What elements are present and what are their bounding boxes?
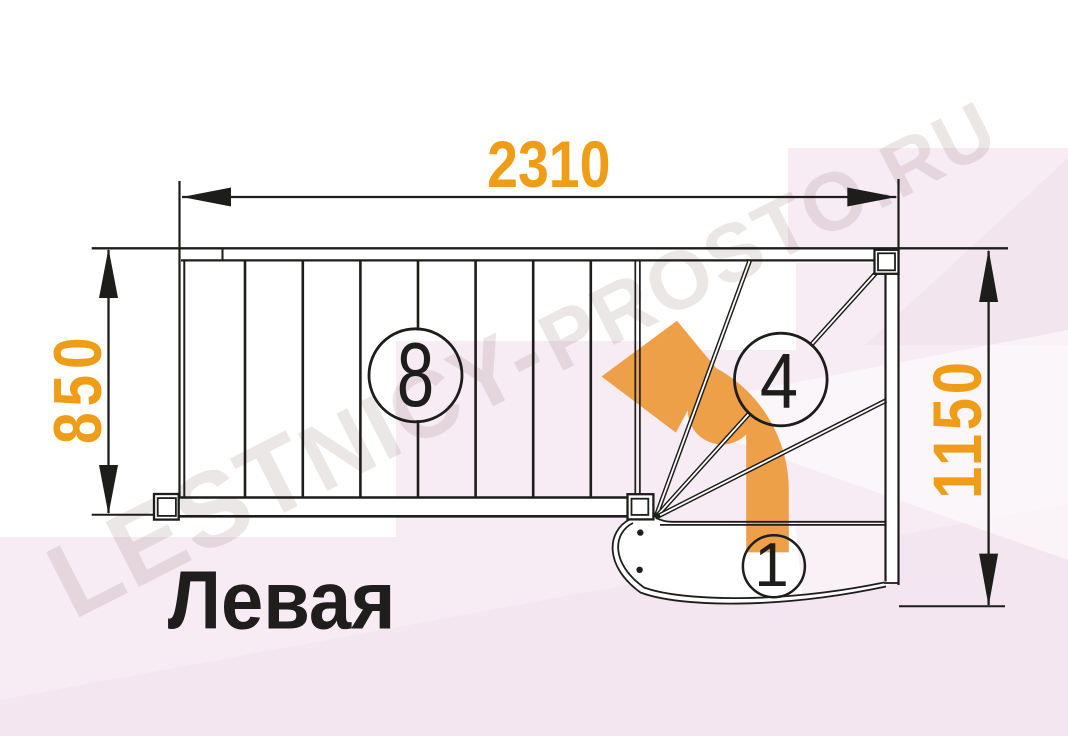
svg-text:2310: 2310: [487, 128, 610, 202]
svg-text:1: 1: [754, 531, 788, 600]
svg-text:1150: 1150: [918, 358, 996, 498]
svg-text:4: 4: [760, 336, 798, 424]
svg-text:850: 850: [40, 332, 116, 444]
svg-text:Левая: Левая: [168, 553, 396, 646]
svg-text:8: 8: [397, 324, 434, 425]
